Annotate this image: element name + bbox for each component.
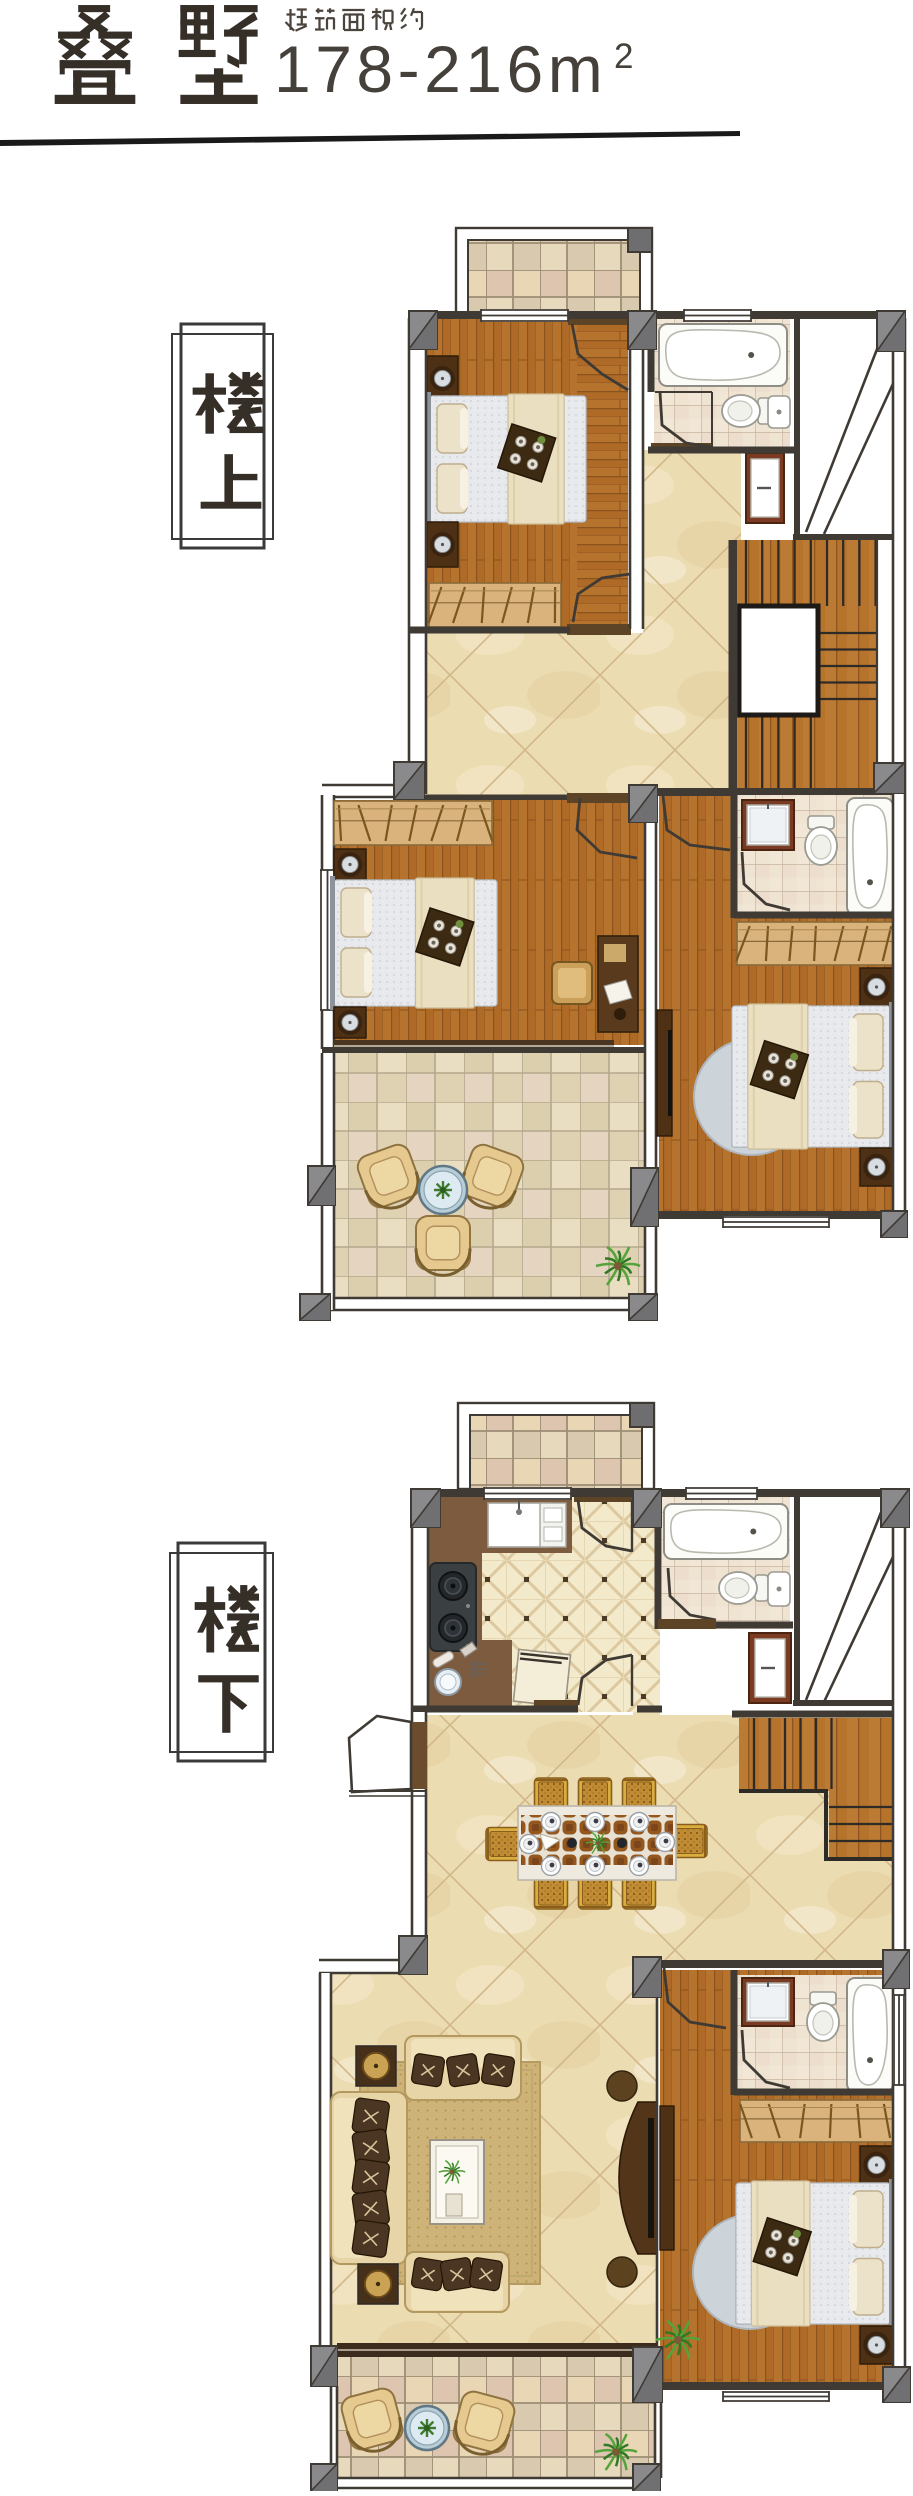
svg-text:178-216m: 178-216m [274,32,607,106]
svg-text:2: 2 [614,37,633,76]
